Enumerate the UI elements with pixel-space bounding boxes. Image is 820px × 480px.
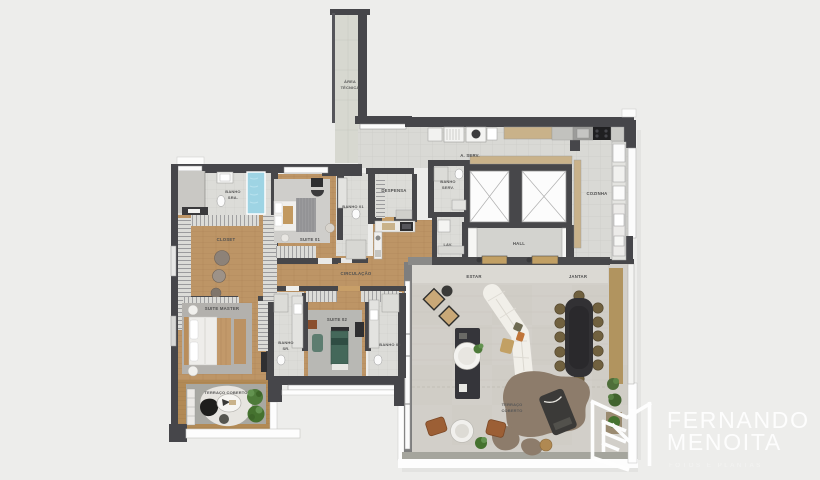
svg-text:JANTAR: JANTAR: [569, 274, 588, 279]
svg-text:BANHO 02: BANHO 02: [379, 342, 401, 347]
svg-text:SUITE 01: SUITE 01: [300, 237, 321, 242]
svg-text:DESPENSA: DESPENSA: [381, 188, 406, 193]
svg-text:LAV.: LAV.: [443, 242, 452, 247]
svg-text:BANHO: BANHO: [278, 340, 293, 345]
svg-text:SR.: SR.: [282, 346, 289, 351]
svg-text:SRA.: SRA.: [228, 195, 238, 200]
svg-text:CIRCULAÇÃO: CIRCULAÇÃO: [341, 271, 372, 276]
svg-text:BANHO: BANHO: [440, 179, 455, 184]
svg-text:BANHO 01: BANHO 01: [342, 204, 364, 209]
svg-text:TERRAÇO COBERTO: TERRAÇO COBERTO: [204, 390, 247, 395]
svg-text:FOTOS E PLANTAS: FOTOS E PLANTAS: [669, 463, 763, 469]
svg-text:SUITE MASTER: SUITE MASTER: [205, 306, 240, 311]
svg-text:MENOITA: MENOITA: [667, 429, 782, 455]
svg-text:SUITE 02: SUITE 02: [327, 317, 348, 322]
svg-text:TERRAÇO: TERRAÇO: [502, 402, 523, 407]
svg-text:A. SERV.: A. SERV.: [460, 153, 480, 158]
svg-text:COBERTO: COBERTO: [502, 408, 523, 413]
svg-text:ESTAR: ESTAR: [466, 274, 482, 279]
svg-text:HALL: HALL: [513, 241, 525, 246]
svg-text:CLOSET: CLOSET: [217, 237, 236, 242]
svg-text:ÁREA: ÁREA: [344, 79, 356, 84]
svg-text:BANHO: BANHO: [225, 189, 240, 194]
svg-text:TÉCNICA: TÉCNICA: [341, 85, 360, 90]
svg-text:COZINHA: COZINHA: [587, 191, 608, 196]
svg-text:SERV.: SERV.: [442, 185, 454, 190]
